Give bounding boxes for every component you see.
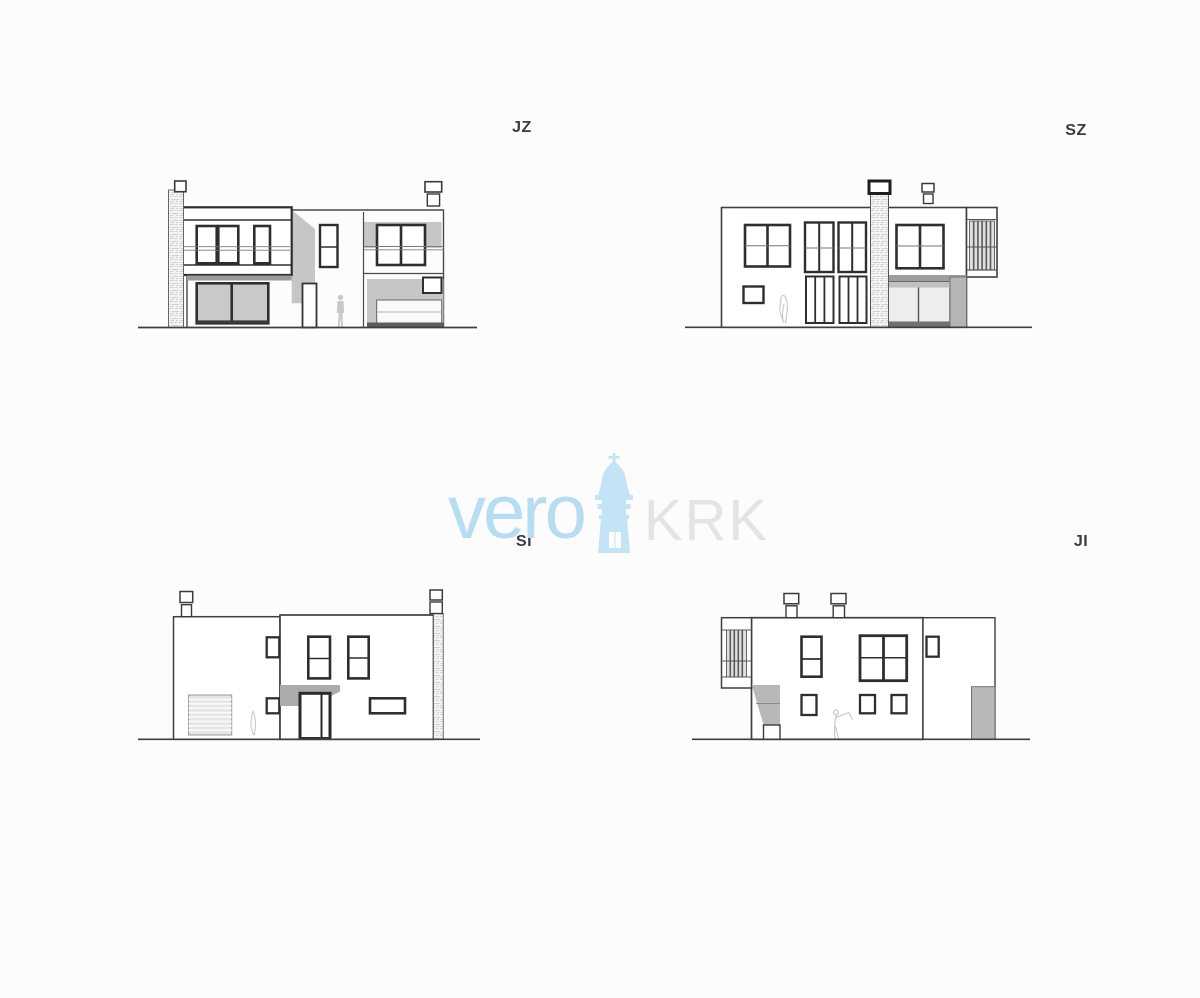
chimney-cap (175, 181, 186, 192)
elevation-ji (690, 520, 1120, 780)
narrow-window (320, 225, 338, 267)
louver-balcony (722, 618, 752, 688)
chimney-cap (831, 594, 846, 604)
window (254, 226, 270, 263)
small-window (267, 698, 280, 713)
elevation-sz-drawing (660, 100, 1100, 360)
horizontal-window (370, 698, 405, 713)
small-window (860, 695, 875, 713)
balcony-box (181, 207, 292, 275)
chimney-cap (425, 182, 442, 192)
small-window (892, 695, 907, 713)
person-figure (337, 295, 344, 328)
support-pillar (972, 687, 996, 740)
elevation-sz (660, 100, 1100, 360)
small-window (802, 695, 817, 715)
window (802, 637, 822, 677)
small-window (267, 637, 280, 657)
chimney-cap (180, 592, 193, 603)
sliding-door (887, 282, 951, 327)
elevation-jz (130, 100, 550, 360)
window (197, 226, 217, 263)
small-window (744, 287, 764, 304)
elevation-ji-drawing (690, 520, 1120, 780)
soffit-shadow (187, 276, 292, 281)
chimney-cap (784, 594, 799, 604)
garage-door (189, 695, 232, 735)
entrance-door (300, 693, 330, 738)
chimney-cap (430, 590, 442, 600)
elevation-jz-drawing (130, 100, 550, 360)
window (218, 226, 238, 263)
window (308, 637, 330, 679)
louver-balcony (967, 208, 998, 278)
elevation-si-drawing (130, 520, 560, 780)
door (303, 284, 317, 328)
roof-vent (922, 184, 934, 193)
small-window (927, 637, 939, 657)
chimney-cap (869, 181, 890, 194)
church-tower-icon (590, 453, 640, 557)
small-window (423, 278, 442, 294)
stone-chimney (434, 614, 444, 740)
elevation-si (130, 520, 560, 780)
drawing-sheet: JZ (0, 0, 1200, 998)
support-pillar (950, 277, 967, 327)
stone-chimney (169, 190, 184, 328)
stone-chimney (871, 194, 889, 328)
